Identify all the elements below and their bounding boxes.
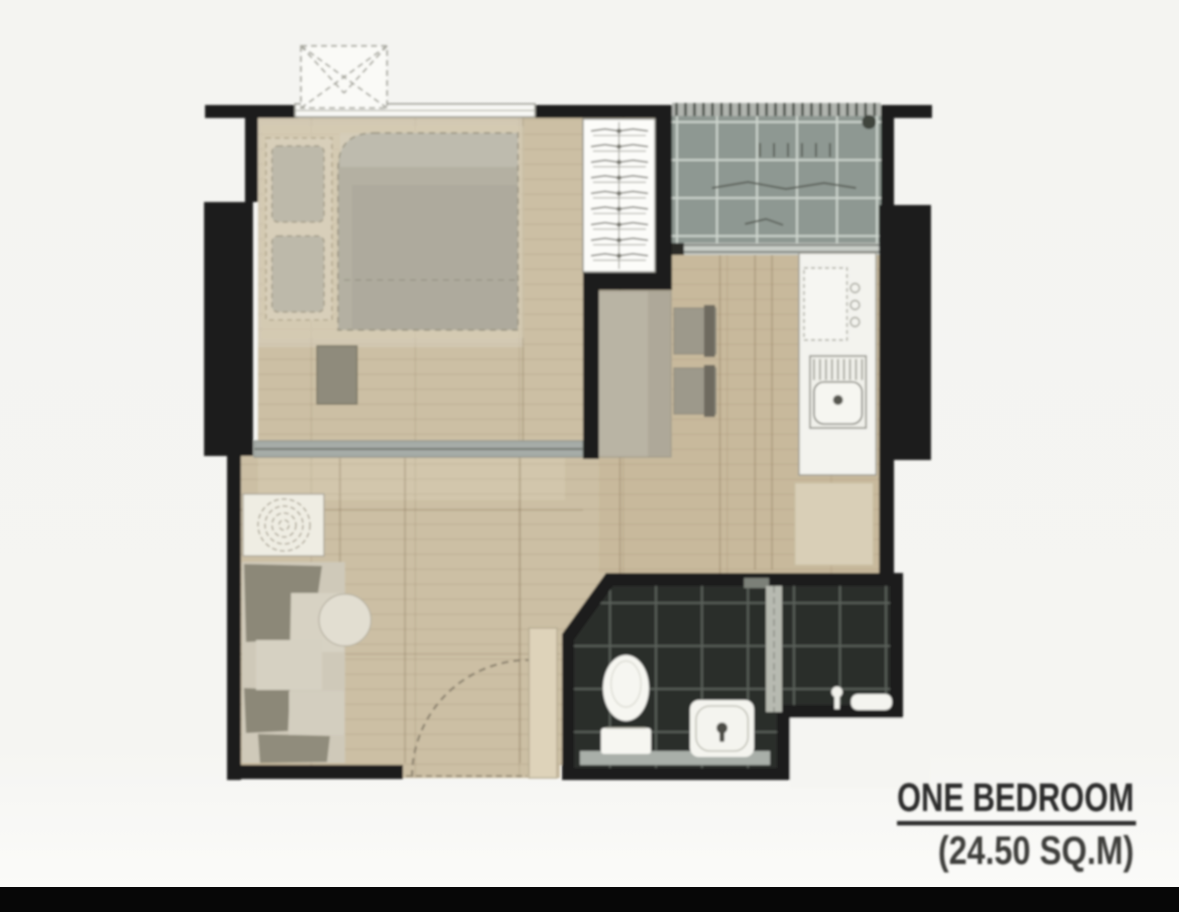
svg-text:(24.50 SQ.M): (24.50 SQ.M) bbox=[938, 829, 1134, 873]
svg-text:ONE BEDROOM: ONE BEDROOM bbox=[897, 776, 1134, 820]
